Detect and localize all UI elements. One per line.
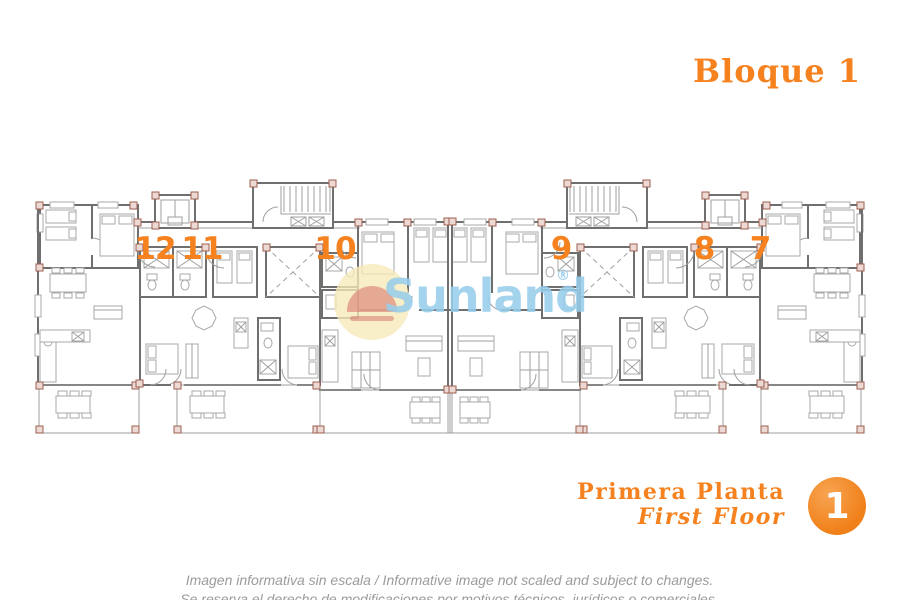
floor-title: Primera Planta First Floor — [577, 480, 785, 530]
floorplan-page: Sunland ® Bloque 1 12 11 10 9 8 7 Primer… — [0, 0, 899, 600]
floor-number: 1 — [824, 486, 849, 527]
disclaimer-line-1: Imagen informativa sin escala / Informat… — [0, 571, 899, 590]
floor-title-es: Primera Planta — [577, 480, 785, 505]
unit-number-7: 7 — [750, 231, 771, 267]
unit-number-9: 9 — [551, 231, 572, 267]
unit-10-living — [322, 330, 442, 388]
unit-number-11: 11 — [181, 231, 222, 267]
unit-number-8: 8 — [694, 231, 715, 267]
floor-number-badge: 1 — [808, 477, 866, 535]
block-title: Bloque 1 — [693, 52, 861, 90]
unit-10-bedrooms — [355, 219, 450, 310]
unit-11-lower-rooms — [140, 297, 320, 385]
disclaimer-line-2: Se reserva el derecho de modificaciones … — [0, 590, 899, 600]
unit-12-bedroom-block — [37, 202, 138, 268]
terraces-left — [36, 374, 450, 433]
plan-left-half — [35, 180, 451, 433]
stairwell-left — [250, 180, 336, 228]
disclaimer: Imagen informativa sin escala / Informat… — [0, 571, 899, 600]
floor-title-en: First Floor — [577, 505, 785, 530]
unit-number-12: 12 — [134, 231, 175, 267]
unit-number-10: 10 — [314, 231, 355, 267]
plan-right-half — [449, 180, 865, 433]
elevator-left — [152, 192, 198, 229]
